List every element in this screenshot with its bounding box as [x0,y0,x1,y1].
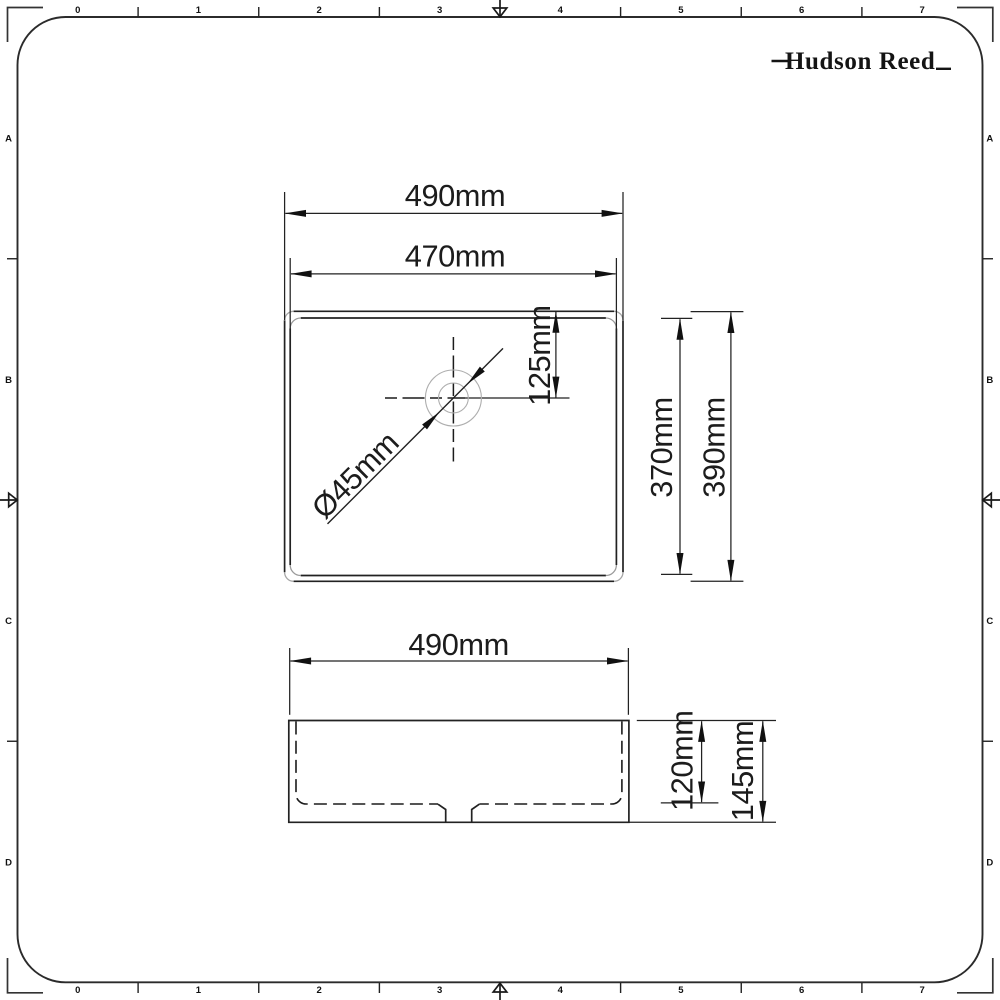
svg-text:A: A [5,134,12,145]
svg-text:2: 2 [316,985,321,996]
svg-text:7: 7 [920,985,925,996]
svg-text:D: D [5,857,12,868]
svg-text:6: 6 [799,5,804,16]
svg-text:4: 4 [558,985,564,996]
svg-text:120mm: 120mm [665,711,700,811]
svg-text:1: 1 [196,985,202,996]
svg-text:0: 0 [75,985,80,996]
svg-text:2: 2 [316,5,321,16]
svg-text:0: 0 [75,5,80,16]
svg-text:6: 6 [799,985,804,996]
svg-text:390mm: 390mm [697,397,732,497]
svg-text:7: 7 [920,5,925,16]
svg-text:3: 3 [437,985,442,996]
svg-text:490mm: 490mm [405,178,505,213]
svg-text:C: C [5,616,12,627]
svg-text:B: B [986,375,993,386]
svg-text:C: C [986,616,993,627]
svg-text:B: B [5,375,12,386]
svg-text:3: 3 [437,5,442,16]
svg-text:D: D [986,857,993,868]
svg-text:370mm: 370mm [644,397,679,497]
svg-text:470mm: 470mm [405,239,505,274]
svg-text:Hudson Reed: Hudson Reed [785,48,935,75]
svg-text:125mm: 125mm [522,305,557,405]
svg-text:1: 1 [196,5,202,16]
svg-text:490mm: 490mm [408,627,508,662]
svg-text:145mm: 145mm [725,721,760,821]
svg-text:5: 5 [678,5,684,16]
svg-text:A: A [986,134,993,145]
svg-text:5: 5 [678,985,684,996]
svg-text:4: 4 [558,5,564,16]
